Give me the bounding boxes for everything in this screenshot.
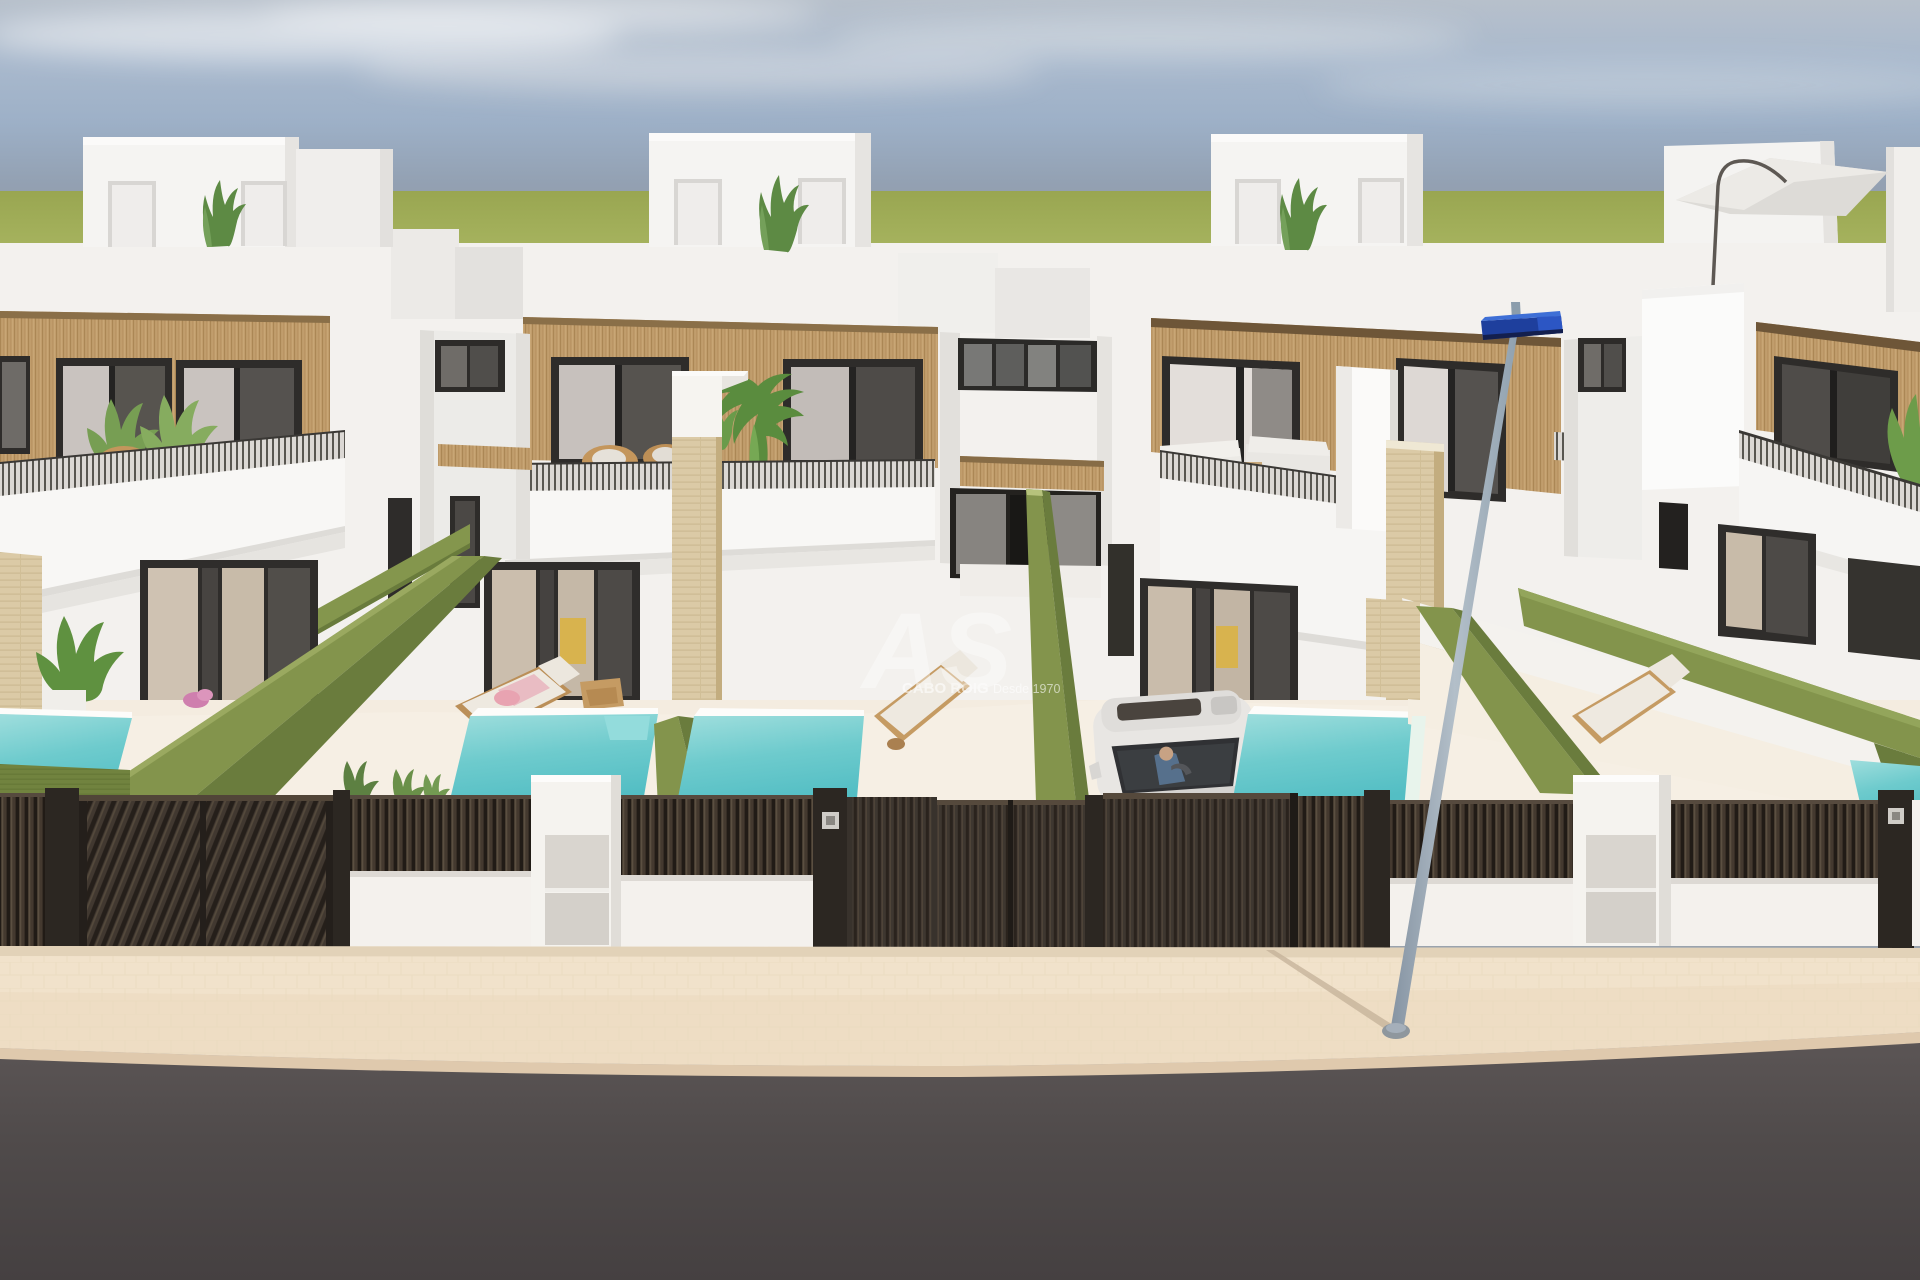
svg-text:CABO ROIG: CABO ROIG [902, 680, 989, 697]
svg-text:Desde 1970: Desde 1970 [993, 682, 1060, 696]
